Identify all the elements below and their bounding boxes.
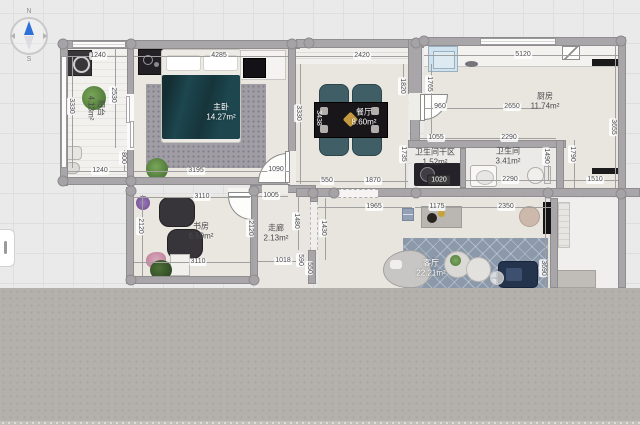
dim[interactable]: 3330 — [294, 104, 302, 122]
room-area: 4.13m² — [87, 96, 97, 121]
dim[interactable]: 590 — [296, 253, 304, 267]
dim[interactable]: 800 — [119, 151, 127, 165]
dim[interactable]: 2120 — [136, 217, 144, 235]
wall[interactable] — [618, 37, 626, 196]
dim[interactable]: 3690 — [539, 259, 547, 277]
selected-dimension[interactable]: 1020 — [427, 175, 451, 186]
room-area: 3.41m² — [496, 156, 521, 166]
wall-joint — [249, 186, 260, 197]
dim[interactable]: 1240 — [89, 52, 107, 60]
corridor-passage — [310, 202, 318, 250]
room-name: 客厅 — [423, 259, 439, 269]
room-label-corridor[interactable]: 走廊 2.13m² — [264, 224, 289, 243]
dim[interactable]: 1790 — [568, 145, 576, 163]
washer-drum-icon — [73, 56, 90, 73]
room-name: 书房 — [193, 222, 209, 232]
room-area: 1.52m² — [423, 157, 448, 167]
room-name: 主卧 — [213, 103, 229, 113]
wall-joint — [616, 189, 627, 200]
bathroom-sink[interactable] — [470, 165, 497, 187]
room-name: 厨房 — [537, 92, 553, 102]
dim[interactable]: 2420 — [353, 52, 371, 60]
room-area: 8.60m² — [352, 117, 377, 127]
dim[interactable]: 2650 — [503, 103, 521, 111]
dimension-line — [300, 64, 301, 184]
decor-vase — [438, 210, 445, 217]
armchair-navy[interactable] — [498, 261, 538, 288]
compass-west-tick-icon — [11, 33, 15, 39]
dim[interactable]: 2350 — [497, 203, 515, 211]
dim[interactable]: 1870 — [364, 177, 382, 185]
dim[interactable]: 960 — [433, 103, 447, 111]
dim[interactable]: 1820 — [398, 77, 406, 95]
dim[interactable]: 3195 — [187, 167, 205, 175]
wall[interactable] — [460, 148, 466, 188]
wall-joint — [249, 275, 260, 286]
wardrobe-unit[interactable] — [243, 58, 266, 78]
coffee-table[interactable] — [466, 257, 491, 282]
room-name: 卫生间干区 — [415, 148, 455, 158]
accent-chair[interactable] — [519, 206, 540, 227]
armchair-pillow — [506, 268, 522, 281]
room-label-dining[interactable]: 餐厅 8.60m² — [352, 108, 377, 127]
room-label-master[interactable]: 主卧 14.27m² — [206, 103, 235, 122]
ceiling-lamp-icon — [490, 271, 504, 285]
washing-machine[interactable] — [66, 50, 92, 76]
kitchen-sink[interactable] — [428, 46, 458, 72]
dimension-line — [296, 56, 408, 57]
room-area: 6.59m² — [189, 231, 214, 241]
entry-opening[interactable] — [338, 189, 378, 198]
dining-bay-window — [296, 46, 408, 64]
sink-bowl — [476, 170, 494, 185]
drag-handle-icon — [4, 241, 7, 254]
wall-joint — [58, 176, 69, 187]
room-label-study[interactable]: 书房 6.59m² — [189, 222, 214, 241]
wall-joint — [126, 275, 137, 286]
dimension-line — [615, 45, 616, 188]
room-name: 卫生间 — [496, 147, 520, 157]
window[interactable] — [72, 41, 126, 48]
dim[interactable]: 2120 — [246, 219, 254, 237]
dim[interactable]: 1965 — [365, 203, 383, 211]
compass[interactable]: N S — [10, 8, 48, 64]
dimension-line — [134, 197, 250, 198]
room-area: 2.13m² — [264, 233, 289, 243]
room-label-bath[interactable]: 卫生间 3.41m² — [496, 147, 521, 166]
dim[interactable]: 3330 — [67, 97, 75, 115]
table-plant[interactable] — [450, 255, 461, 266]
dim[interactable]: 1490 — [542, 147, 550, 165]
compass-ring — [10, 17, 48, 55]
panel-expand-tab[interactable] — [0, 229, 15, 267]
wall-joint — [287, 39, 298, 50]
room-label-bath-dry[interactable]: 卫生间干区 1.52m² — [415, 148, 455, 167]
room-label-balcony[interactable]: 阳台 4.13m² — [87, 96, 106, 121]
dim[interactable]: 1480 — [292, 212, 300, 230]
wall[interactable] — [618, 196, 626, 288]
compass-south-label: S — [10, 56, 48, 64]
wardrobe-strip[interactable] — [558, 202, 570, 248]
compass-north-label: N — [10, 8, 48, 16]
room-label-living[interactable]: 客厅 22.21m² — [416, 259, 445, 278]
decor-bowl — [427, 213, 437, 223]
wall-joint — [304, 38, 315, 49]
purple-plant[interactable] — [136, 196, 150, 210]
second-room-bed[interactable] — [556, 270, 596, 288]
dim[interactable]: 5120 — [514, 51, 532, 59]
kitchen-dish[interactable] — [465, 61, 478, 67]
pillow — [166, 55, 201, 71]
sink-basin — [433, 51, 455, 69]
side-table[interactable] — [170, 254, 190, 276]
wall[interactable] — [126, 276, 258, 284]
dimension-line — [142, 195, 143, 276]
dim[interactable]: 4285 — [210, 52, 228, 60]
dimension-line — [296, 181, 408, 182]
dim[interactable]: 1765 — [425, 75, 433, 93]
wall-joint — [543, 188, 554, 199]
bedroom-door-leaf[interactable] — [285, 151, 290, 183]
bottom-panel-overlay — [0, 288, 640, 425]
dim[interactable]: 2530 — [109, 86, 117, 104]
dim[interactable]: 1055 — [427, 134, 445, 142]
bed[interactable] — [161, 49, 241, 143]
dim[interactable]: 1735 — [399, 145, 407, 163]
sliding-door-leaf[interactable] — [126, 96, 130, 123]
wall-joint — [308, 188, 319, 199]
dim[interactable]: 3110 — [193, 193, 210, 201]
dim[interactable]: 1005 — [262, 192, 280, 200]
dim[interactable]: 1175 — [428, 203, 445, 211]
dim[interactable]: 1510 — [586, 176, 604, 184]
wall[interactable] — [60, 177, 290, 185]
wall-joint — [419, 36, 430, 47]
dim[interactable]: 2290 — [501, 176, 519, 184]
dim[interactable]: 1090 — [267, 166, 285, 174]
room-name: 阳台 — [96, 100, 106, 116]
room-name: 走廊 — [268, 224, 284, 234]
sliding-door-leaf[interactable] — [130, 121, 134, 148]
wall-joint — [411, 188, 422, 199]
range-hood[interactable] — [562, 46, 580, 60]
dim[interactable]: 2290 — [500, 134, 518, 142]
wall-joint — [126, 186, 137, 197]
doormat[interactable] — [402, 208, 414, 221]
room-area: 22.21m² — [416, 268, 445, 278]
bottom-panel-edge — [0, 421, 640, 425]
window[interactable] — [480, 38, 556, 45]
wall-joint — [329, 188, 340, 199]
compass-east-tick-icon — [43, 33, 47, 39]
toilet[interactable] — [527, 167, 544, 184]
wall[interactable] — [126, 187, 134, 284]
dim[interactable]: 3438 — [314, 109, 322, 127]
room-area: 14.27m² — [206, 112, 235, 122]
wall-joint — [126, 39, 137, 50]
wall[interactable] — [288, 44, 296, 154]
compass-south-needle-icon — [24, 36, 34, 50]
wall[interactable] — [550, 198, 558, 288]
wall-joint — [616, 36, 627, 47]
sofa-cushion — [390, 260, 402, 269]
dim[interactable]: 1430 — [319, 219, 327, 237]
dim[interactable]: 3655 — [609, 118, 617, 136]
wall-joint — [58, 39, 69, 50]
room-area: 11.74m² — [531, 101, 560, 111]
dim[interactable]: 550 — [320, 177, 334, 185]
dim[interactable]: 1240 — [91, 167, 109, 175]
wall[interactable] — [296, 39, 424, 48]
dim[interactable]: 3110 — [189, 258, 206, 266]
room-name: 餐厅 — [356, 108, 372, 118]
room-label-kitchen[interactable]: 厨房 11.74m² — [531, 92, 560, 111]
dim[interactable]: 550 — [305, 261, 313, 275]
dim[interactable]: 1018 — [274, 257, 292, 265]
floorplan-canvas[interactable]: 1240 4285 2420 5120 1240 3195 1090 550 1… — [0, 0, 640, 425]
dresser-decor-icon — [154, 62, 159, 67]
compass-north-needle-icon — [24, 21, 34, 35]
